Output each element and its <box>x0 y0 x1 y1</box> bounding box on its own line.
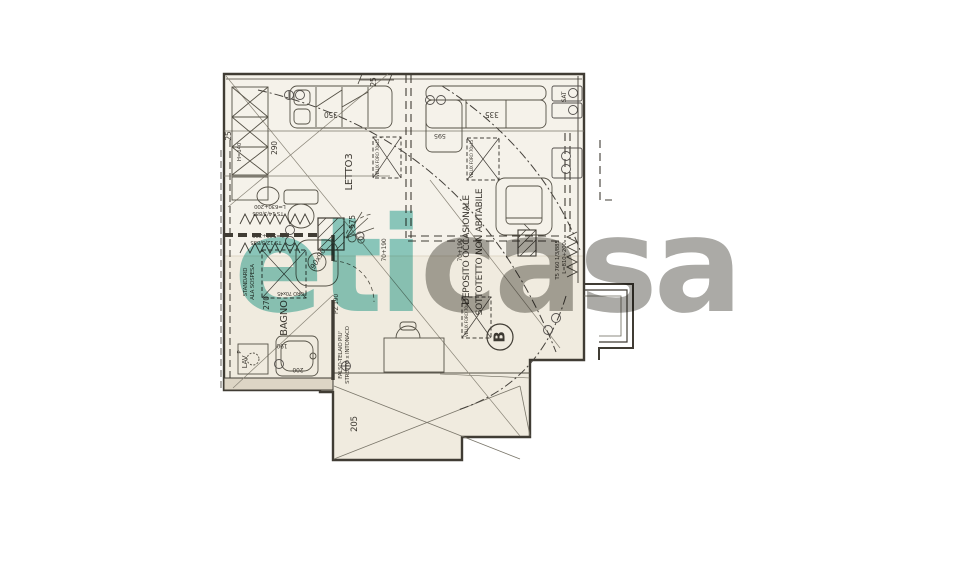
watermark-eti: eti <box>234 189 420 343</box>
velux1-label: VELUX FORO 70x45 <box>375 138 380 177</box>
bath-south-wall <box>224 378 333 390</box>
dim-595: 595 <box>434 132 446 140</box>
dim-left-25: 25 <box>224 131 233 141</box>
dim-190: 190 <box>276 342 287 349</box>
dim-350: 350 <box>324 110 338 119</box>
eticasa-watermark: eticasa <box>234 200 739 332</box>
room-lav-label: LAV <box>241 355 249 368</box>
dim-200: 200 <box>292 366 303 373</box>
dim-h140: H=140 <box>237 142 243 161</box>
sat-label: SAT <box>561 91 568 102</box>
dim-top-25: 25 <box>369 77 378 87</box>
room-letto-label: LETTO3 <box>344 154 355 191</box>
dim-290: 290 <box>270 141 279 155</box>
dim-205: 205 <box>350 416 360 432</box>
watermark-casa: casa <box>420 189 739 343</box>
floor-plan-page: B LETTO3 BAGNO DEPOSITO OCCASIONALE SOTT… <box>0 0 968 565</box>
dim-335: 335 <box>485 110 499 119</box>
velux2-label: VELUX FORO 70x45 <box>469 139 474 178</box>
